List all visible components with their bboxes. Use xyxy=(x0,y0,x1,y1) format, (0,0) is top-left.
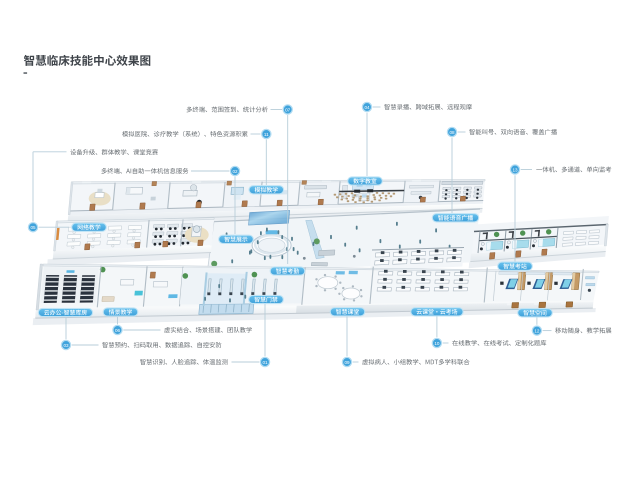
svg-text:02: 02 xyxy=(232,169,238,174)
svg-text:05: 05 xyxy=(30,225,36,230)
svg-text:12: 12 xyxy=(534,329,540,334)
svg-text:11: 11 xyxy=(264,132,269,137)
svg-text:08: 08 xyxy=(449,130,455,135)
svg-text:07: 07 xyxy=(285,107,291,112)
svg-text:04: 04 xyxy=(364,105,370,110)
svg-text:01: 01 xyxy=(262,360,268,365)
svg-text:10: 10 xyxy=(434,341,440,346)
svg-text:13: 13 xyxy=(512,167,518,172)
svg-text:06: 06 xyxy=(115,328,121,333)
svg-text:09: 09 xyxy=(344,360,350,365)
svg-text:03: 03 xyxy=(63,343,69,348)
